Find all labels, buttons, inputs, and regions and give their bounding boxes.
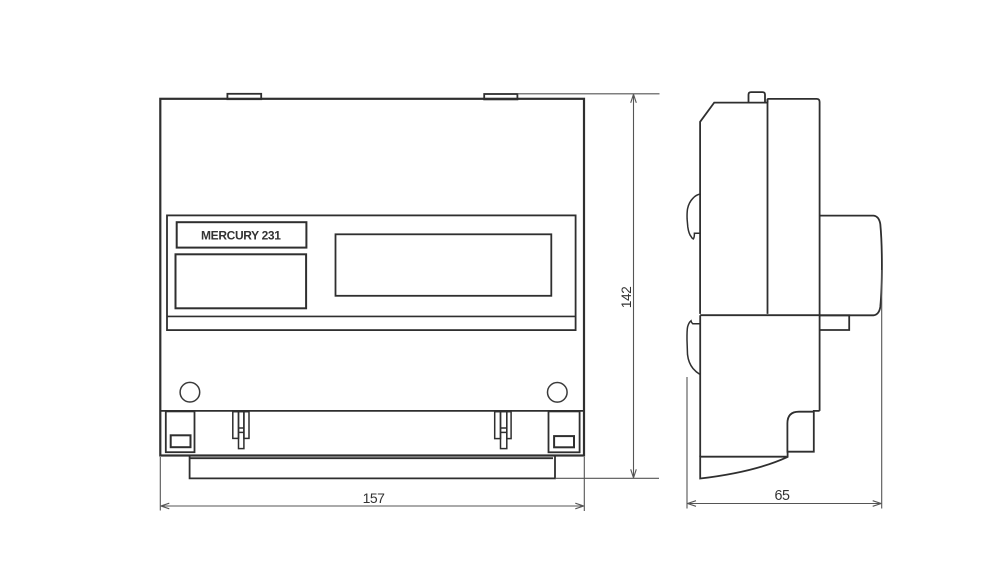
svg-text:142: 142 bbox=[619, 286, 634, 308]
svg-text:157: 157 bbox=[363, 490, 386, 506]
svg-text:MERCURY 231: MERCURY 231 bbox=[201, 228, 281, 242]
svg-text:65: 65 bbox=[775, 488, 790, 504]
